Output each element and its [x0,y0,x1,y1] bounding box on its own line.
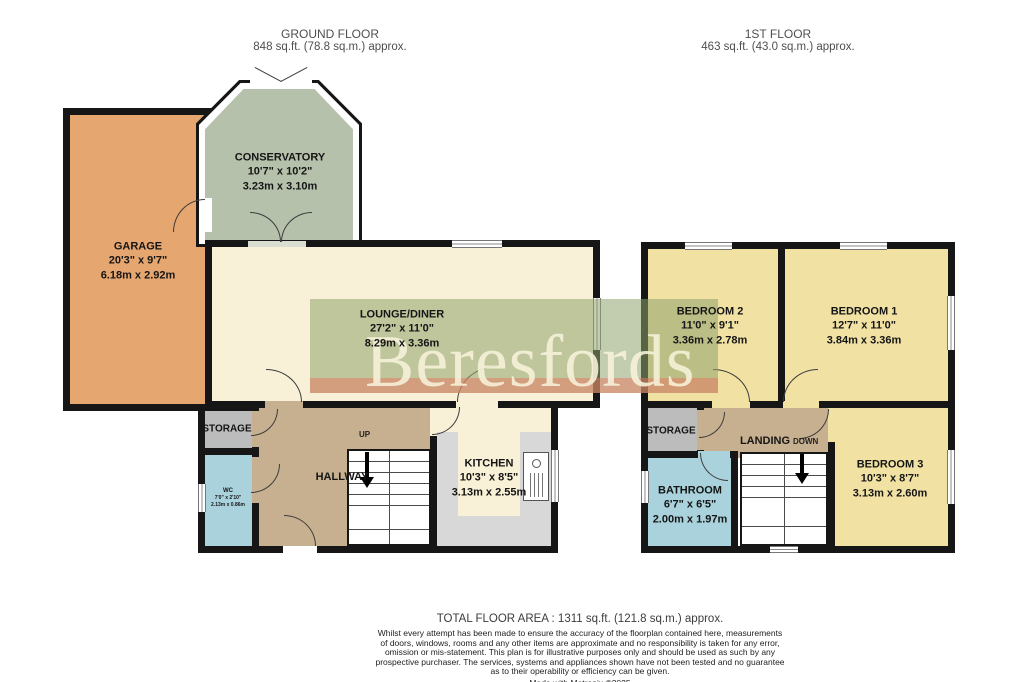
credit-line: Made with Metropix ©2025 [375,678,784,682]
total-floor-area: TOTAL FLOOR AREA : 1311 sq.ft. (121.8 sq… [375,613,784,625]
storage-first-label: STORAGE [646,425,695,438]
kitchen-sink [523,452,549,501]
room-name: CONSERVATORY [235,151,325,165]
kitchen-label: KITCHEN 10'3" x 8'5" 3.13m x 2.55m [452,457,527,500]
disclaimer-line: as to their operability or efficiency ca… [375,667,784,677]
room-size-ft: 20'3" x 9'7" [101,254,176,268]
room-size-m: 3.13m x 2.60m [853,486,928,500]
floorplan: GROUND FLOOR 848 sq.ft. (78.8 sq.m.) app… [0,0,1024,682]
door-gap [783,401,819,408]
room-name: BEDROOM 2 [673,305,748,319]
room-size-m: 6.18m x 2.92m [101,268,176,282]
stair-divider [784,454,785,544]
sink-drain-icon [532,459,541,468]
stairs-up-label: UP [359,430,370,439]
room-size-m: 3.84m x 3.36m [827,333,902,347]
room-size-m: 8.29m x 3.36m [360,336,444,350]
room-name: BEDROOM 1 [827,305,902,319]
storage-ground-label: STORAGE [202,423,251,436]
window [452,240,502,248]
bathroom-label: BATHROOM 6'7" x 6'5" 2.00m x 1.97m [653,484,728,527]
bedroom1-label: BEDROOM 1 12'7" x 11'0" 3.84m x 3.36m [827,305,902,348]
window [947,450,955,504]
window [770,546,798,553]
room-name: BATHROOM [653,484,728,498]
room-size-ft: 6'7" x 6'5" [653,498,728,512]
window [198,484,206,512]
ground-floor-header: GROUND FLOOR 848 sq.ft. (78.8 sq.m.) app… [253,27,406,55]
hallway-label: HALLWAY [316,470,369,484]
window [641,471,649,503]
first-floor-header: 1ST FLOOR 463 sq.ft. (43.0 sq.m.) approx… [701,27,854,55]
staircase-ground [347,449,431,546]
garage-label: GARAGE 20'3" x 9'7" 6.18m x 2.92m [101,240,176,283]
sink-drainer-lines [527,473,545,497]
footer: TOTAL FLOOR AREA : 1311 sq.ft. (121.8 sq… [375,613,784,682]
room-size-ft: 27'2" x 11'0" [360,322,444,336]
door-gap [205,198,212,232]
bedroom2-label: BEDROOM 2 11'0" x 9'1" 3.36m x 2.78m [673,305,748,348]
room-size-m: 3.36m x 2.78m [673,333,748,347]
room-size-ft: 12'7" x 11'0" [827,319,902,333]
room-name: BEDROOM 3 [853,458,928,472]
room-name: STORAGE [646,425,695,438]
room-size-m: 3.23m x 3.10m [235,179,325,193]
lounge-label: LOUNGE/DINER 27'2" x 11'0" 8.29m x 3.36m [360,308,444,351]
room-size-ft: 7'0" x 2'10" [211,495,245,502]
front-door-gap [283,546,317,553]
room-size-ft: 11'0" x 9'1" [673,319,748,333]
bedroom3-label: BEDROOM 3 10'3" x 8'7" 3.13m x 2.60m [853,458,928,501]
room-name: GARAGE [101,240,176,254]
room-size-m: 3.13m x 2.55m [452,485,527,499]
ground-floor-title: GROUND FLOOR [253,27,406,41]
room-name: LOUNGE/DINER [360,308,444,322]
down-arrow-head [795,473,809,484]
door-gap [828,408,835,442]
first-floor-area: 463 sq.ft. (43.0 sq.m.) approx. [701,41,854,55]
room-size-ft: 10'7" x 10'2" [235,165,325,179]
down-arrow-shaft [800,454,804,474]
stair-divider [389,451,390,544]
wc-label: WC 7'0" x 2'10" 2.13m x 0.86m [211,487,245,509]
ground-floor-area: 848 sq.ft. (78.8 sq.m.) approx. [253,41,406,55]
room-size-m: 2.13m x 0.86m [211,502,245,509]
room-name: HALLWAY [316,470,369,484]
room-size-m: 2.00m x 1.97m [653,512,728,526]
stairs-down-label: DOWN [793,437,818,446]
room-name: KITCHEN [452,457,527,471]
door-gap [265,401,303,408]
room-name: STORAGE [202,423,251,436]
room-name: LANDING [740,434,790,448]
window [947,296,955,350]
door-gap [712,401,750,408]
window [551,450,559,502]
staircase-first [740,452,828,546]
room-size-ft: 10'3" x 8'7" [853,472,928,486]
window [685,242,732,250]
landing-label: LANDING [740,434,790,448]
room-size-ft: 10'3" x 8'5" [452,471,527,485]
conservatory-label: CONSERVATORY 10'7" x 10'2" 3.23m x 3.10m [235,151,325,194]
window [840,242,887,250]
first-floor-title: 1ST FLOOR [701,27,854,41]
room-name: WC [211,487,245,495]
